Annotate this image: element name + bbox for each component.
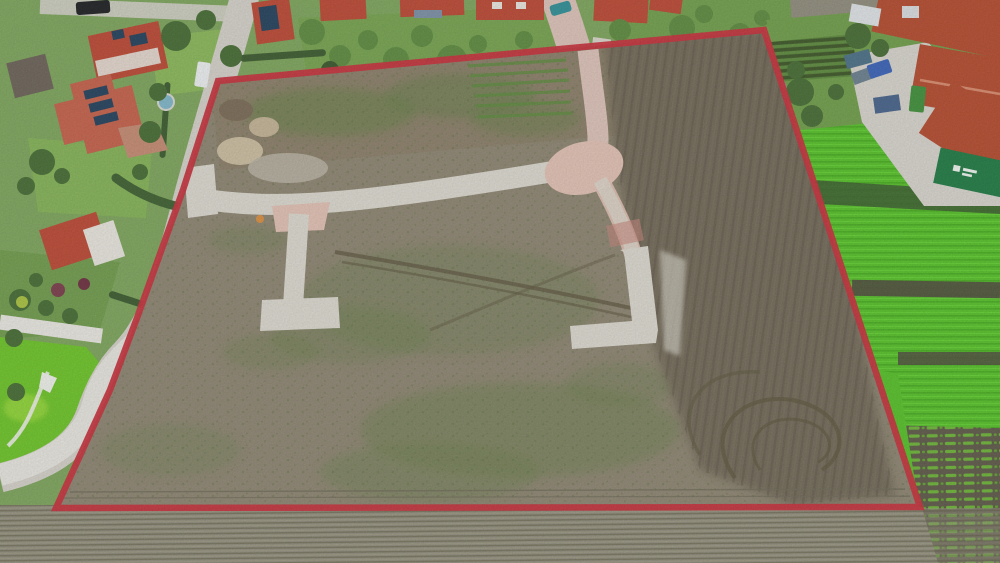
aerial-photo-canvas xyxy=(0,0,1000,563)
grain-light-overlay xyxy=(0,0,1000,563)
aerial-photo xyxy=(0,0,1000,563)
